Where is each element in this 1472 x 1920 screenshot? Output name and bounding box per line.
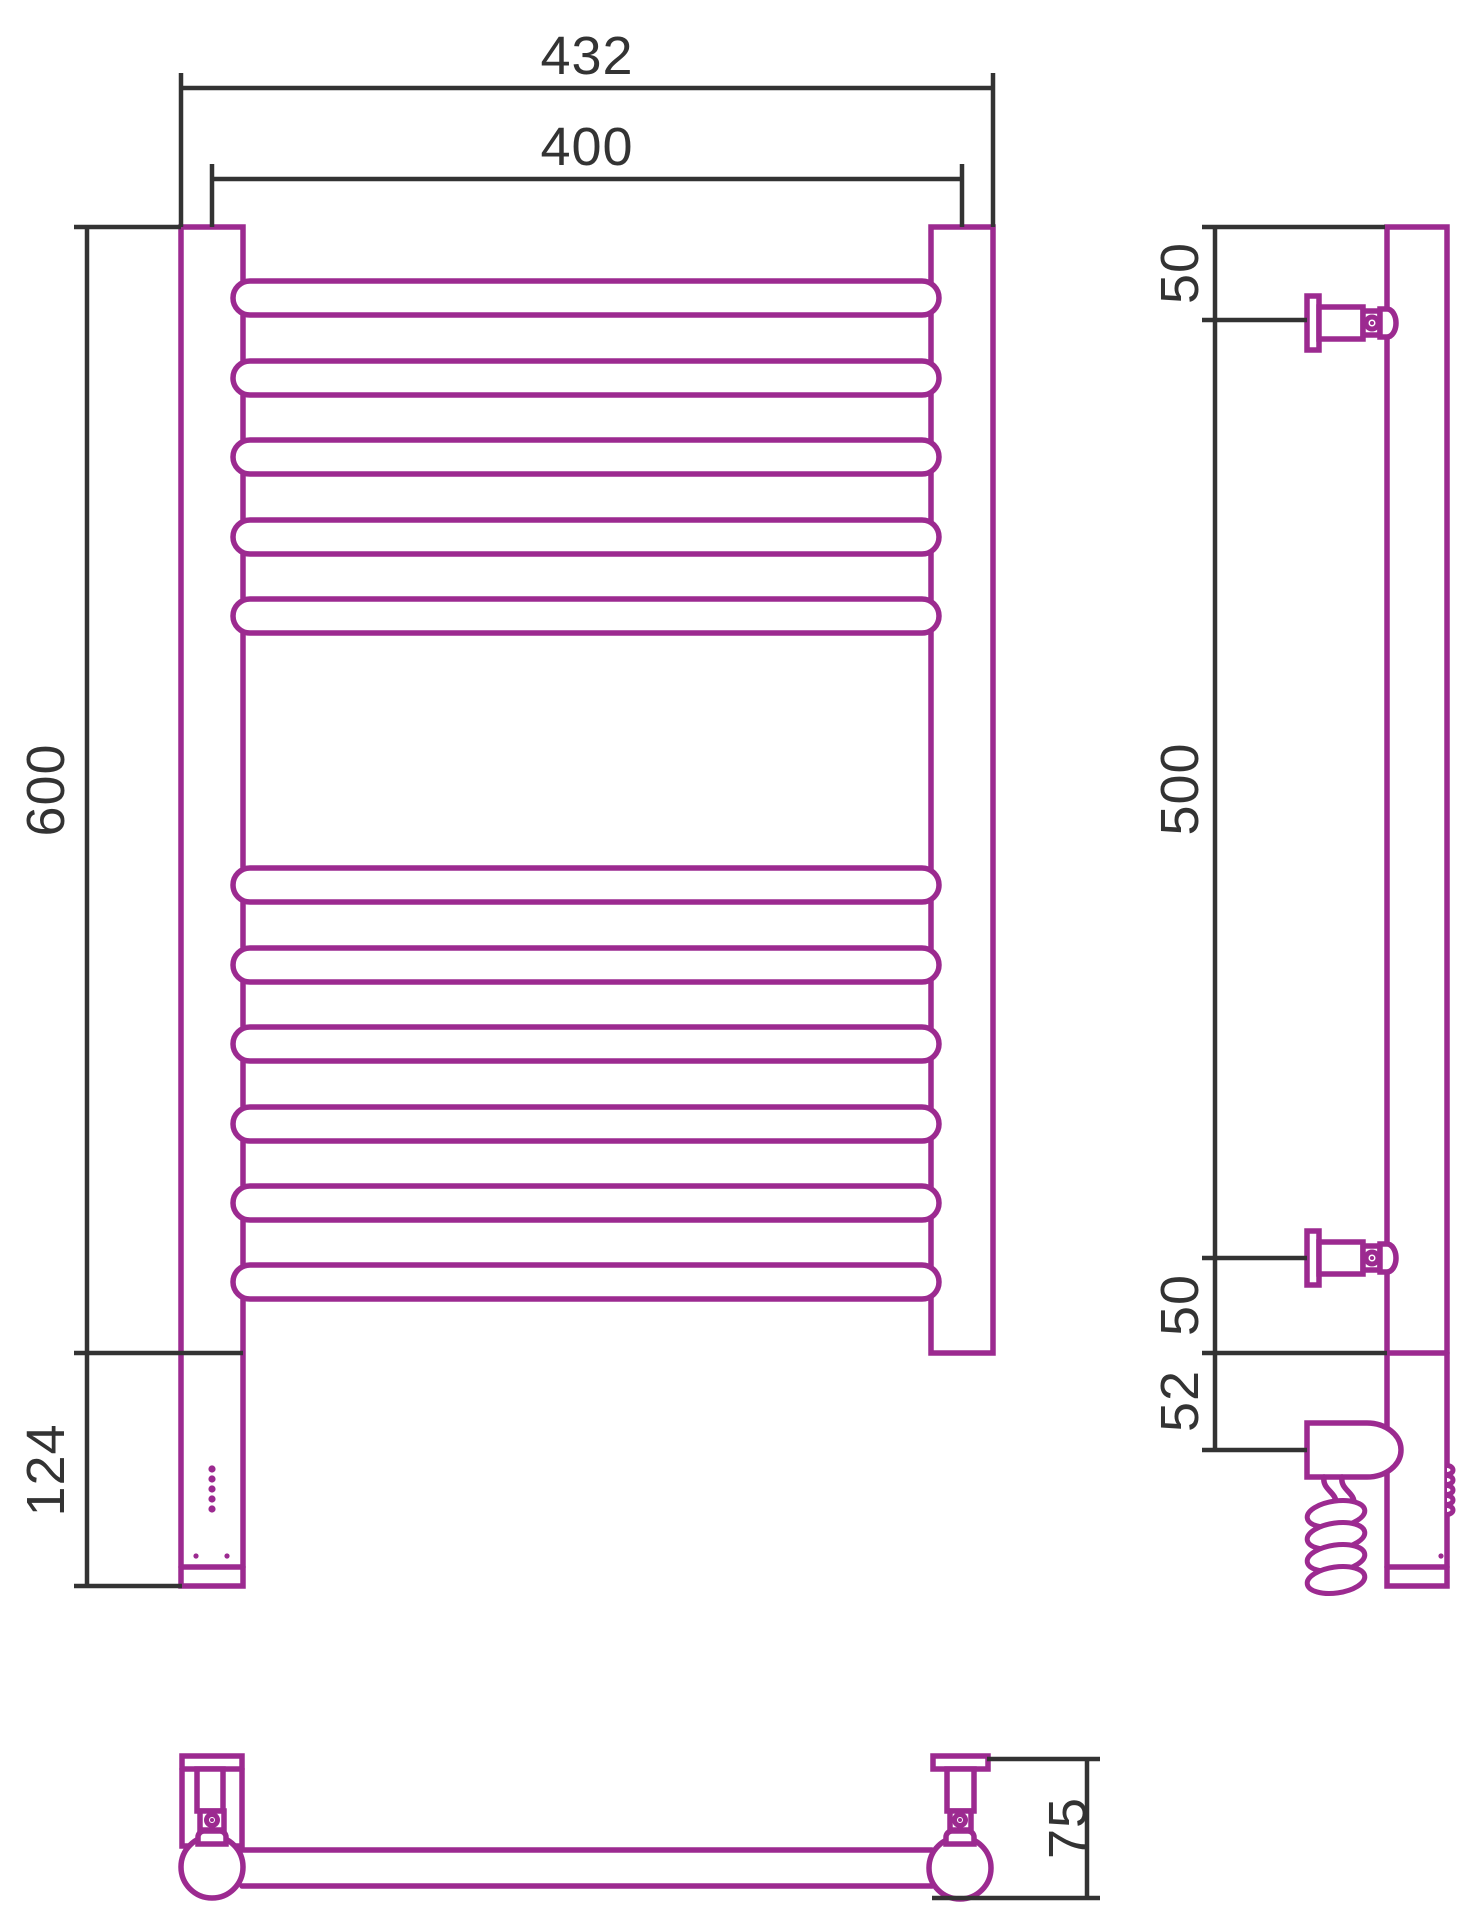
dimension-rail-center-width: 400 bbox=[212, 117, 962, 227]
front-left-rail bbox=[181, 227, 243, 1586]
front-bar bbox=[233, 1107, 939, 1141]
front-right-rail bbox=[931, 227, 993, 1353]
dim-label-bottom-bracket: 50 bbox=[1150, 1274, 1210, 1336]
side-screw-dot bbox=[1438, 1553, 1443, 1558]
front-bar bbox=[233, 520, 939, 554]
bracket-cap bbox=[1380, 1244, 1396, 1272]
technical-drawing: 432 400 600 124 bbox=[0, 0, 1472, 1920]
bracket-cap bbox=[198, 1831, 226, 1844]
front-bar bbox=[233, 361, 939, 395]
front-bar bbox=[233, 948, 939, 982]
front-bar bbox=[233, 440, 939, 474]
dim-label-cable-entry: 52 bbox=[1150, 1370, 1210, 1432]
plan-right-fitting bbox=[929, 1756, 991, 1899]
front-bar bbox=[233, 1186, 939, 1220]
side-view bbox=[1305, 227, 1453, 1597]
dim-label-bracket-span: 500 bbox=[1150, 742, 1210, 835]
front-bar bbox=[233, 868, 939, 902]
plan-left-fitting bbox=[181, 1756, 243, 1898]
bracket-arm bbox=[947, 1769, 974, 1811]
side-led-bumps bbox=[1447, 1466, 1453, 1515]
front-view bbox=[181, 227, 993, 1586]
dimension-heater-section: 124 bbox=[16, 1353, 182, 1586]
bracket-cap bbox=[1380, 309, 1396, 337]
front-bar bbox=[233, 281, 939, 315]
dim-label-heater-section: 124 bbox=[16, 1423, 76, 1516]
side-rail-profile bbox=[1387, 227, 1447, 1586]
heating-element-body bbox=[1307, 1423, 1401, 1477]
bracket-cap bbox=[946, 1831, 974, 1844]
bracket-arm bbox=[1319, 307, 1363, 339]
front-bar bbox=[233, 599, 939, 633]
dim-label-rail-center-width: 400 bbox=[540, 117, 633, 177]
side-wall-bracket-bottom bbox=[1307, 1231, 1396, 1285]
plan-view bbox=[181, 1756, 991, 1899]
dim-label-overall-width: 432 bbox=[540, 26, 633, 86]
front-bar bbox=[233, 1265, 939, 1299]
front-bar bbox=[233, 1027, 939, 1061]
bracket-arm bbox=[1319, 1242, 1363, 1274]
side-wall-bracket-top bbox=[1307, 296, 1396, 350]
coiled-cable bbox=[1305, 1497, 1366, 1597]
dim-label-height: 600 bbox=[16, 743, 76, 836]
dim-label-top-bracket: 50 bbox=[1150, 242, 1210, 304]
bracket-arm bbox=[197, 1769, 223, 1811]
dim-label-depth: 75 bbox=[1038, 1797, 1098, 1859]
drawing-page: 432 400 600 124 bbox=[0, 0, 1472, 1920]
